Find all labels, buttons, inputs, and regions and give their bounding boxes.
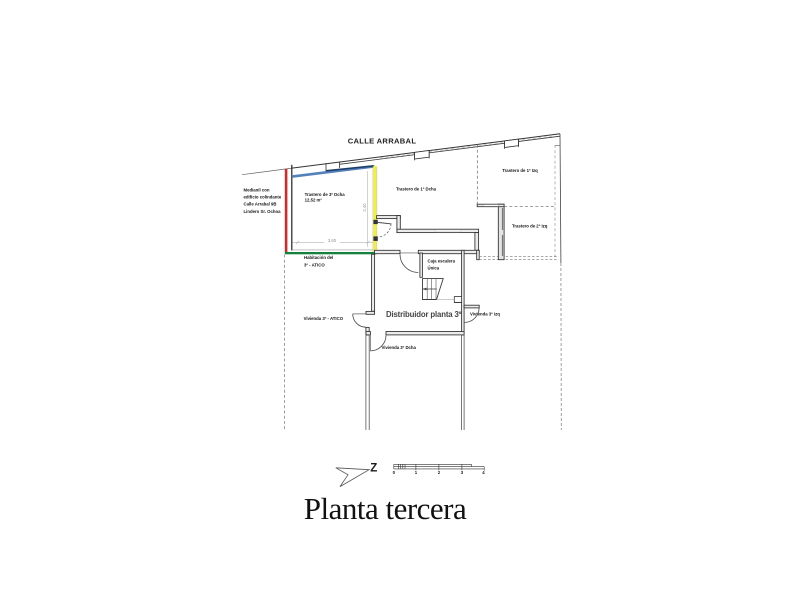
- svg-text:Vivienda 3º - ATICO: Vivienda 3º - ATICO: [304, 316, 344, 321]
- svg-text:3: 3: [461, 470, 464, 475]
- svg-text:CALLE ARRABAL: CALLE ARRABAL: [348, 137, 417, 146]
- svg-text:Vivienda 3º Izq: Vivienda 3º Izq: [470, 312, 500, 317]
- svg-text:Vivienda 3º Dcha: Vivienda 3º Dcha: [382, 345, 417, 350]
- svg-text:Z: Z: [370, 462, 377, 474]
- svg-text:Medianil con: Medianil con: [244, 187, 270, 192]
- svg-text:2: 2: [438, 470, 441, 475]
- svg-text:Única: Única: [428, 265, 440, 270]
- svg-text:1: 1: [415, 470, 418, 475]
- svg-text:Planta tercera: Planta tercera: [304, 491, 467, 526]
- svg-text:0: 0: [393, 470, 396, 475]
- svg-text:3º - ATICO: 3º - ATICO: [304, 262, 325, 267]
- svg-text:2,40: 2,40: [362, 203, 367, 212]
- svg-text:Trastero de 1º Dcha: Trastero de 1º Dcha: [396, 186, 437, 191]
- svg-text:Lindero Sr. Ochoa: Lindero Sr. Ochoa: [244, 209, 282, 214]
- svg-text:Habitación del: Habitación del: [304, 255, 333, 260]
- svg-text:Caja escalera: Caja escalera: [428, 259, 456, 264]
- svg-text:3,60: 3,60: [328, 238, 337, 243]
- svg-text:12,52 m²: 12,52 m²: [305, 197, 323, 202]
- svg-text:edificio colindante: edificio colindante: [244, 195, 282, 200]
- svg-text:Trastero de 2º Izq: Trastero de 2º Izq: [512, 223, 548, 228]
- svg-text:Trastero de 1º Izq: Trastero de 1º Izq: [502, 168, 538, 173]
- svg-text:Distribuidor planta 3º: Distribuidor planta 3º: [386, 310, 462, 319]
- svg-text:4: 4: [482, 470, 485, 475]
- svg-text:Calle Arrabal 9B: Calle Arrabal 9B: [244, 202, 277, 207]
